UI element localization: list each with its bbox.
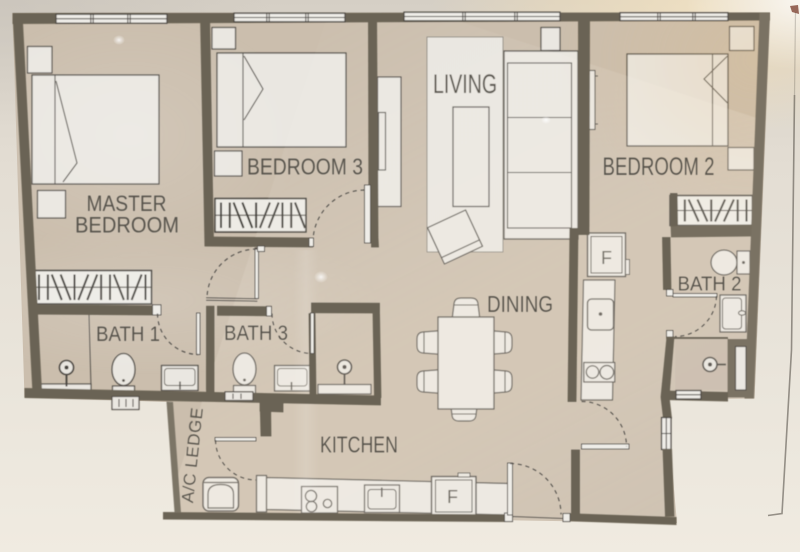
svg-text:KITCHEN: KITCHEN — [320, 432, 398, 458]
svg-text:BATH 2: BATH 2 — [678, 274, 742, 296]
svg-text:BATH 3: BATH 3 — [224, 322, 288, 345]
svg-text:DINING: DINING — [487, 291, 553, 317]
svg-text:BEDROOM 2: BEDROOM 2 — [603, 153, 715, 181]
svg-text:BATH 1: BATH 1 — [96, 323, 160, 346]
svg-text:LIVING: LIVING — [433, 69, 497, 99]
svg-text:BEDROOM 3: BEDROOM 3 — [247, 154, 363, 180]
svg-text:BEDROOM: BEDROOM — [75, 213, 179, 238]
